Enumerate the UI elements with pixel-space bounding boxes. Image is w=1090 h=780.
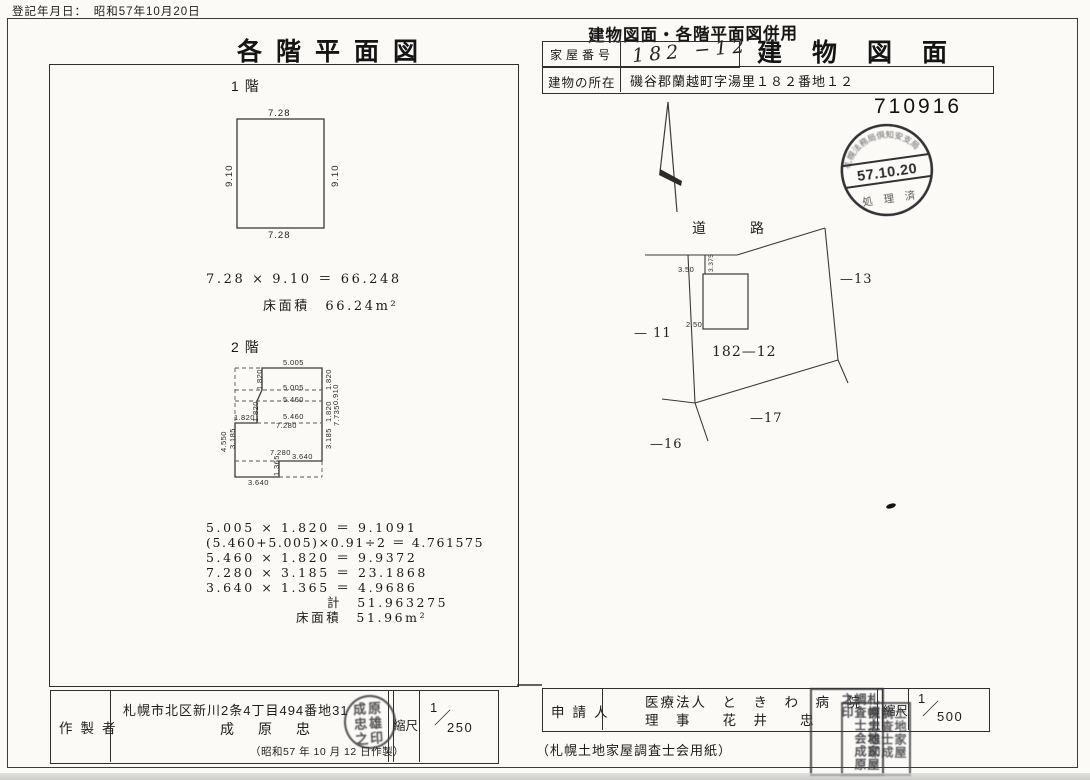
floor2-dim: 5.460 bbox=[283, 412, 304, 421]
floor2-dim: 1.365 bbox=[272, 455, 281, 476]
floor2-dim: 5.460 bbox=[283, 395, 304, 404]
maker-name: 成原忠 bbox=[220, 719, 334, 739]
paper-note: （札幌土地家屋調査士会用紙） bbox=[536, 740, 732, 759]
floor2-dim: 7.280 bbox=[276, 421, 297, 430]
applicant-scale-denominator: 500 bbox=[937, 709, 963, 724]
parcel-label-13: —13 bbox=[840, 272, 873, 287]
applicant-line2: 理 事 花 井 忠 bbox=[645, 709, 816, 729]
site-junction-tick-left bbox=[662, 399, 695, 403]
floor2-dim: 3.640 bbox=[292, 452, 313, 461]
floor2-dim: 7.735 bbox=[332, 405, 341, 426]
floor2-area-line: 床面積 51.96m² bbox=[296, 607, 427, 626]
site-left-boundary bbox=[688, 255, 695, 403]
floor1-dim-top: 7.28 bbox=[268, 108, 291, 119]
road-label: 道路 bbox=[692, 218, 808, 238]
maker-label: 作製者 bbox=[59, 717, 124, 737]
floor2-dim: 3.640 bbox=[248, 478, 269, 487]
maker-address: 札幌市北区新川2条4丁目494番地31 bbox=[123, 700, 349, 719]
parcel-label-main: 182—12 bbox=[712, 344, 777, 360]
floor1-area-line: 床面積 66.24m² bbox=[263, 295, 398, 314]
registry-sheet: 登記年月日： 昭和57年10月20日 各階平面図 建物図面 建物図面・各階平面図… bbox=[0, 0, 1090, 780]
parcel-label-11: — 11 bbox=[634, 326, 672, 341]
site-boundaries bbox=[645, 228, 848, 441]
floor2-label: 2階 bbox=[231, 337, 265, 357]
site-dim-road-offset: 3.375 bbox=[708, 254, 715, 272]
floor1-calc-line: 7.28 × 9.10 ＝ 66.248 bbox=[206, 268, 402, 287]
floor2-dim: 5.005 bbox=[283, 358, 304, 367]
floor1-label: 1階 bbox=[231, 76, 265, 96]
site-bottom-boundary bbox=[695, 360, 838, 403]
maker-scale-denominator: 250 bbox=[447, 720, 473, 735]
linework-layer bbox=[0, 0, 1090, 780]
floor2-dim: 3.185 bbox=[228, 428, 237, 449]
floor2-dim: 1.820 bbox=[255, 369, 264, 390]
parcel-label-16: —16 bbox=[650, 437, 683, 452]
site-building-rect bbox=[703, 274, 748, 329]
maker-scale-label: 縮尺 bbox=[393, 715, 418, 734]
floor1-dim-right: 9.10 bbox=[330, 165, 341, 188]
site-right-boundary bbox=[825, 228, 848, 383]
parcel-label-17: —17 bbox=[750, 411, 783, 426]
site-dim-left: 2.50 bbox=[686, 320, 702, 329]
floor2-dim: 4.550 bbox=[219, 431, 228, 452]
floor2-dim: 3.185 bbox=[324, 428, 333, 449]
floor2-dim: 1.820 bbox=[251, 401, 260, 422]
site-dim-top: 3.50 bbox=[678, 265, 694, 274]
applicant-seal-b: 土地家屋調査士成原忠雄印 bbox=[841, 702, 911, 776]
floor1-rect bbox=[237, 119, 324, 228]
ink-mark bbox=[886, 502, 897, 509]
applicant-label: 申請人 bbox=[551, 701, 616, 721]
site-junction-tick-right bbox=[695, 403, 708, 441]
floor2-dim: 5.005 bbox=[283, 383, 304, 392]
floor1-dim-bottom: 7.28 bbox=[268, 230, 291, 241]
floor1-dim-left: 9.10 bbox=[224, 165, 235, 188]
north-arrow-icon bbox=[659, 102, 682, 212]
scan-edge bbox=[0, 773, 1090, 780]
maker-scale-divider bbox=[419, 690, 420, 762]
